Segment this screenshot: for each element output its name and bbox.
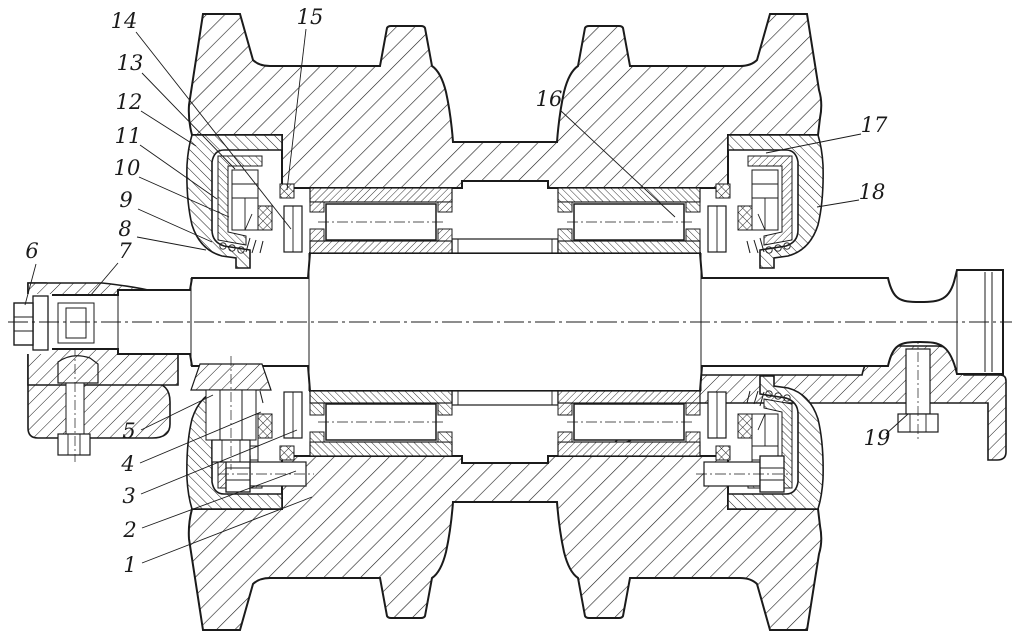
callout-12: 12: [116, 90, 143, 114]
bearing-top-right: [558, 188, 700, 253]
bolt-head: [14, 303, 33, 345]
roller-assembly-section-drawing: 1 2 3 4 5 6 7 8 9 10 11 12 13 14 15 16 1…: [0, 0, 1020, 635]
callout-11: 11: [115, 124, 142, 148]
callout-2: 2: [122, 518, 136, 542]
callout-8: 8: [118, 217, 131, 241]
callout-17: 17: [861, 113, 888, 137]
callout-14: 14: [111, 9, 138, 33]
callout-6: 6: [25, 239, 38, 263]
callout-16: 16: [536, 87, 563, 111]
callout-5: 5: [122, 419, 135, 443]
roller-wheel-top-half: [189, 14, 821, 188]
bearing-bottom-right: [558, 391, 700, 456]
bearing-top-left: [310, 188, 452, 253]
axle-clamp-boss: [58, 356, 98, 383]
callout-4: 4: [120, 452, 134, 476]
callout-13: 13: [117, 51, 144, 75]
washer: [33, 296, 48, 350]
bearing-bottom-left: [310, 391, 452, 456]
callout-18: 18: [859, 180, 886, 204]
callout-1: 1: [123, 553, 136, 577]
callout-19: 19: [864, 426, 891, 450]
callout-9: 9: [119, 188, 132, 212]
callout-10: 10: [114, 156, 141, 180]
callout-15: 15: [297, 5, 324, 29]
callout-3: 3: [122, 484, 135, 508]
drawing-sheet: 1 2 3 4 5 6 7 8 9 10 11 12 13 14 15 16 1…: [0, 0, 1020, 635]
clamp-bolt-head: [58, 434, 90, 455]
callout-7: 7: [118, 239, 132, 263]
